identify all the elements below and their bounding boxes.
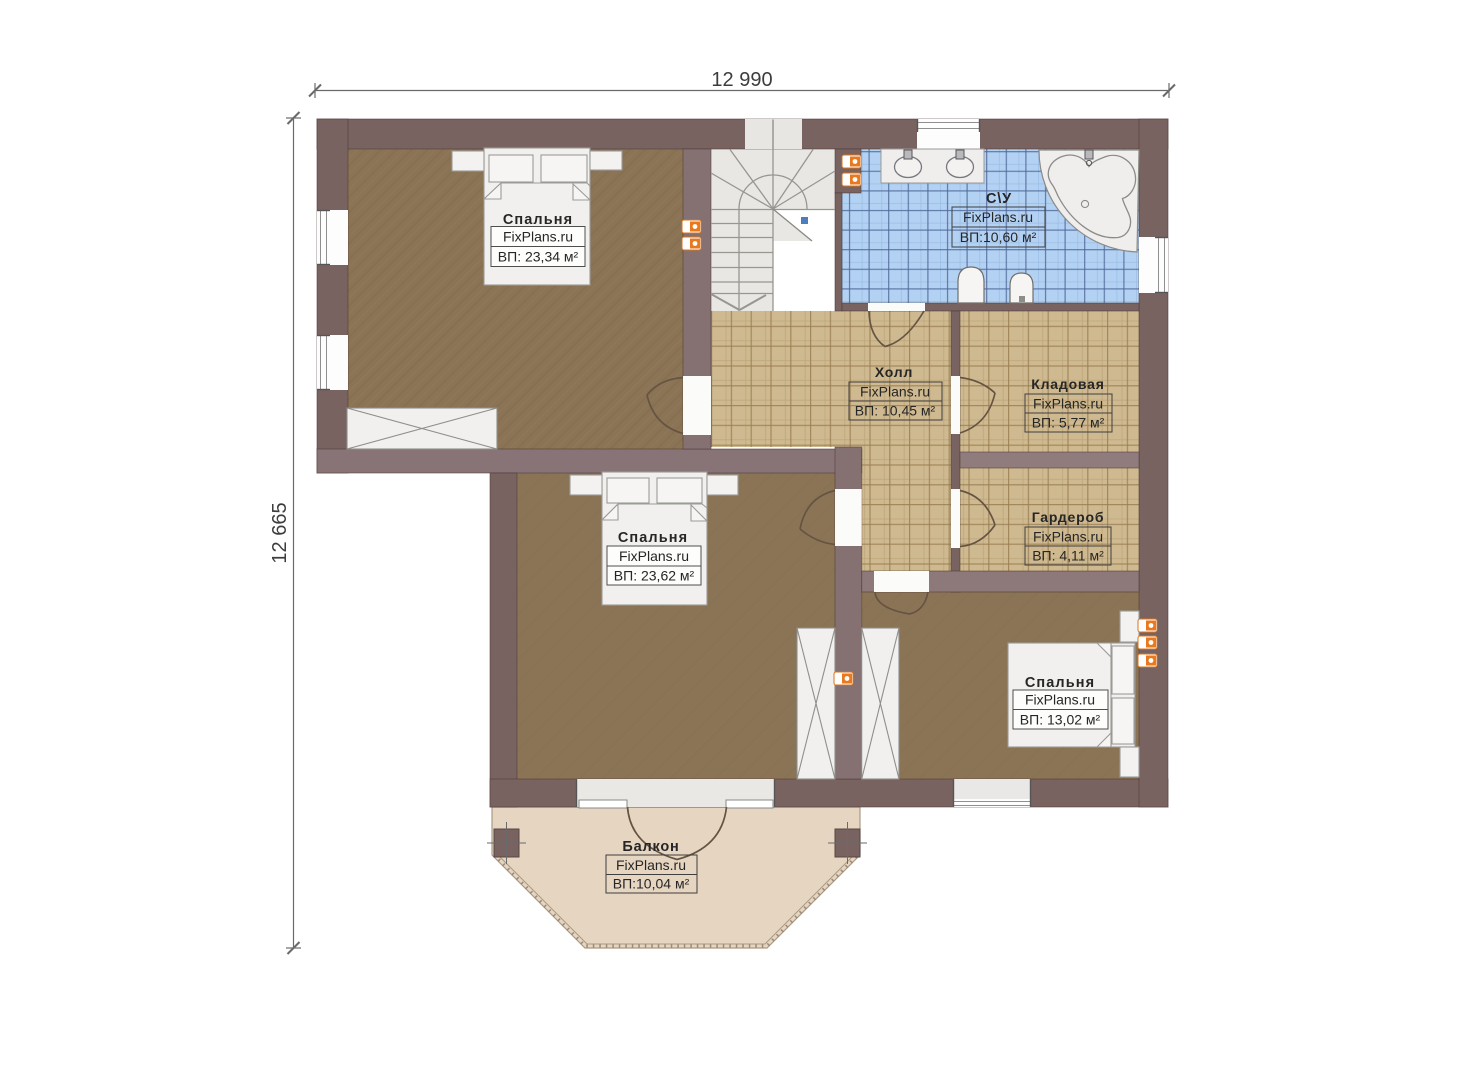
svg-text:FixPlans.ru: FixPlans.ru: [616, 857, 686, 873]
svg-text:FixPlans.ru: FixPlans.ru: [963, 209, 1033, 225]
svg-text:С\У: С\У: [986, 191, 1012, 207]
svg-text:ВП: 23,62 м²: ВП: 23,62 м²: [614, 568, 695, 584]
svg-text:Холл: Холл: [875, 364, 913, 380]
svg-text:12 990: 12 990: [711, 69, 772, 91]
svg-text:ВП:10,60 м²: ВП:10,60 м²: [960, 229, 1037, 245]
svg-text:12 665: 12 665: [269, 502, 291, 563]
svg-text:FixPlans.ru: FixPlans.ru: [503, 229, 573, 245]
svg-text:Гардероб: Гардероб: [1032, 509, 1105, 525]
svg-text:Спальня: Спальня: [503, 212, 573, 228]
svg-text:ВП:10,04 м²: ВП:10,04 м²: [613, 876, 690, 892]
svg-text:Спальня: Спальня: [618, 530, 688, 546]
svg-text:ВП: 5,77 м²: ВП: 5,77 м²: [1032, 415, 1105, 431]
svg-text:FixPlans.ru: FixPlans.ru: [1033, 529, 1103, 545]
svg-text:Спальня: Спальня: [1025, 675, 1095, 691]
svg-text:ВП: 4,11 м²: ВП: 4,11 м²: [1032, 548, 1104, 564]
svg-text:ВП: 13,02 м²: ВП: 13,02 м²: [1020, 712, 1101, 728]
svg-text:FixPlans.ru: FixPlans.ru: [860, 384, 930, 400]
svg-text:Кладовая: Кладовая: [1031, 376, 1104, 392]
svg-text:ВП: 23,34 м²: ВП: 23,34 м²: [498, 249, 579, 265]
svg-text:FixPlans.ru: FixPlans.ru: [1025, 692, 1095, 708]
svg-text:FixPlans.ru: FixPlans.ru: [619, 548, 689, 564]
svg-text:FixPlans.ru: FixPlans.ru: [1033, 396, 1103, 412]
svg-text:Балкон: Балкон: [622, 839, 679, 855]
svg-text:ВП: 10,45 м²: ВП: 10,45 м²: [855, 403, 936, 419]
